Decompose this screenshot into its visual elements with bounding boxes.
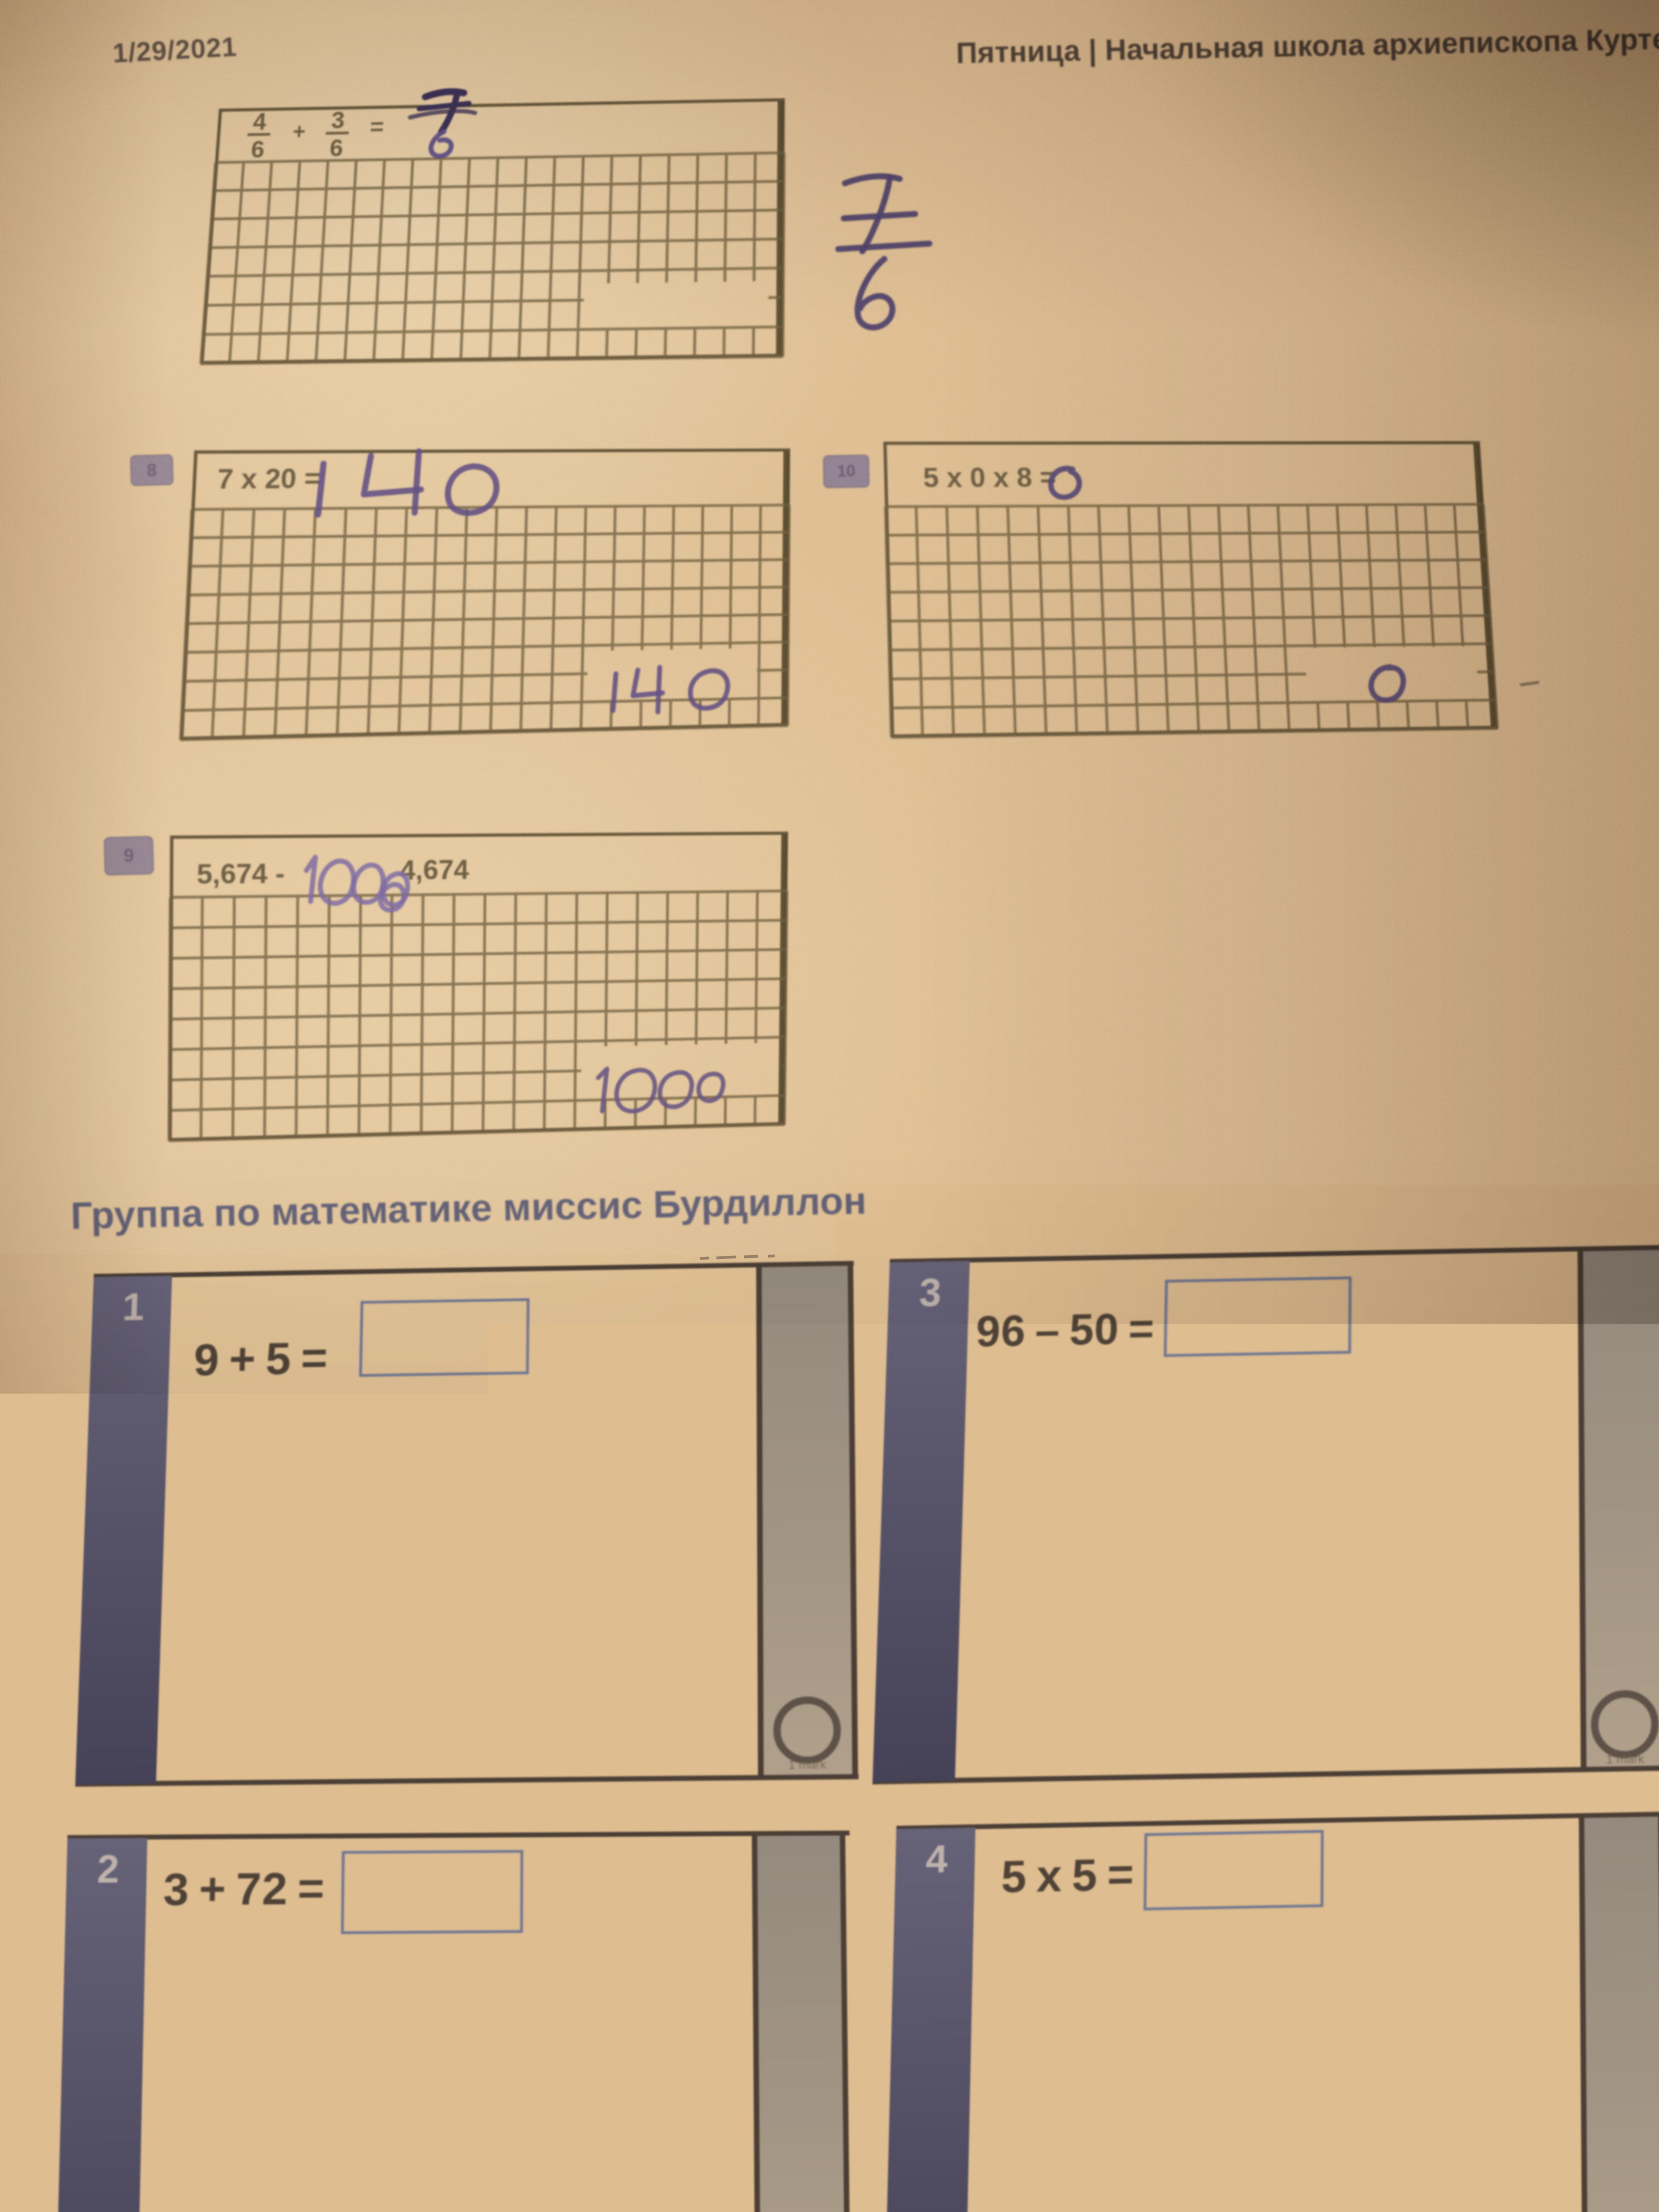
svg-text:4: 4 <box>926 1838 949 1881</box>
svg-text:6: 6 <box>329 135 344 162</box>
svg-text:1 mark: 1 mark <box>1606 1752 1644 1767</box>
svg-text:1 mark: 1 mark <box>788 1758 827 1772</box>
svg-text:1: 1 <box>122 1286 145 1329</box>
svg-text:5,674 -: 5,674 - <box>196 859 285 890</box>
svg-text:2: 2 <box>97 1847 120 1891</box>
svg-text:9 + 5 =: 9 + 5 = <box>193 1333 329 1385</box>
svg-text:3 + 72 =: 3 + 72 = <box>163 1863 325 1915</box>
svg-text:7 x 20 =: 7 x 20 = <box>217 463 321 494</box>
svg-text:4: 4 <box>252 109 268 135</box>
svg-text:96 – 50 =: 96 – 50 = <box>975 1305 1155 1356</box>
svg-text:+: + <box>292 120 306 144</box>
svg-text:5 x 0 x 8 =: 5 x 0 x 8 = <box>923 462 1057 493</box>
svg-text:5 x 5 =: 5 x 5 = <box>1001 1849 1135 1902</box>
svg-text:3: 3 <box>331 108 346 134</box>
svg-text:6: 6 <box>250 137 266 163</box>
svg-text:=: = <box>369 114 385 141</box>
svg-text:4,674: 4,674 <box>400 855 469 886</box>
svg-text:3: 3 <box>918 1271 942 1315</box>
